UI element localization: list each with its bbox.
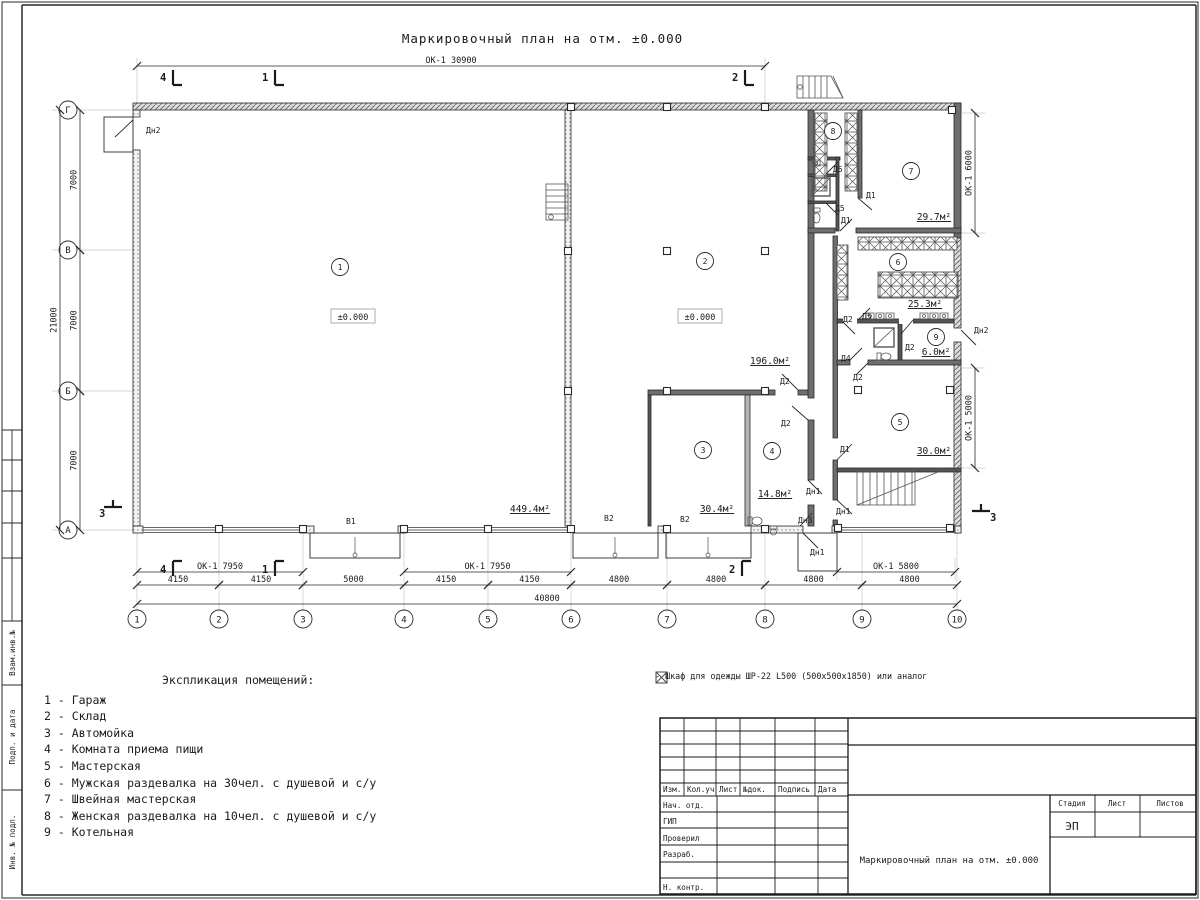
svg-text:Дн2: Дн2	[974, 326, 989, 335]
svg-text:2: 2	[216, 615, 221, 625]
svg-text:Д2: Д2	[843, 315, 853, 324]
svg-text:4150: 4150	[168, 575, 188, 585]
svg-text:Дн3: Дн3	[798, 516, 813, 525]
legend-item: 8 - Женская раздевалка на 10чел. с душев…	[44, 808, 584, 825]
svg-text:5: 5	[898, 418, 903, 427]
svg-text:Д1: Д1	[840, 445, 850, 454]
svg-text:449.4м²: 449.4м²	[510, 504, 550, 515]
svg-text:25.3м²: 25.3м²	[908, 299, 942, 310]
svg-text:1: 1	[338, 263, 343, 272]
svg-text:Лист: Лист	[719, 785, 737, 794]
svg-text:7000: 7000	[70, 170, 80, 190]
legend-item: 9 - Котельная	[44, 824, 584, 841]
svg-text:Проверил: Проверил	[663, 834, 700, 843]
svg-text:3: 3	[99, 508, 105, 520]
porches-and-gates	[104, 117, 837, 571]
svg-text:1: 1	[262, 564, 268, 576]
svg-text:1: 1	[262, 72, 268, 84]
svg-text:4800: 4800	[706, 575, 726, 585]
svg-text:1: 1	[134, 615, 139, 625]
svg-text:10: 10	[952, 615, 963, 625]
svg-text:Д2: Д2	[781, 419, 791, 428]
wall-stairhall-top	[837, 468, 961, 472]
svg-text:8: 8	[831, 127, 836, 136]
svg-text:Г: Г	[65, 106, 70, 116]
svg-text:29.7м²: 29.7м²	[917, 212, 951, 223]
stage-value: ЭП	[1065, 820, 1078, 833]
left-wall	[133, 150, 140, 526]
doc-title: Маркировочный план на отм. ±0.000	[860, 856, 1039, 866]
svg-text:4: 4	[160, 72, 166, 84]
svg-text:Д2: Д2	[780, 377, 790, 386]
svg-text:ОК-1 7950: ОК-1 7950	[197, 562, 243, 572]
wall-room8-room7	[858, 110, 862, 198]
svg-text:8: 8	[762, 615, 767, 625]
svg-text:40800: 40800	[534, 594, 560, 604]
svg-text:3: 3	[701, 446, 706, 455]
legend-item: 3 - Автомойка	[44, 725, 584, 742]
svg-text:ОК-1 5000: ОК-1 5000	[965, 395, 975, 441]
svg-text:4800: 4800	[803, 575, 823, 585]
sheet-header: Лист	[1108, 799, 1126, 808]
svg-text:Д5: Д5	[833, 165, 843, 174]
legend-item: 2 - Склад	[44, 708, 584, 725]
svg-text:Дн2: Дн2	[146, 126, 161, 135]
wall-right-block	[808, 110, 814, 398]
stairs-room5	[857, 472, 938, 505]
svg-text:7: 7	[664, 615, 669, 625]
svg-text:3: 3	[990, 512, 996, 524]
svg-text:№док.: №док.	[742, 785, 766, 794]
svg-text:4800: 4800	[899, 575, 919, 585]
svg-text:3: 3	[300, 615, 305, 625]
svg-text:Разраб.: Разраб.	[663, 850, 695, 859]
svg-text:14.8м²: 14.8м²	[758, 489, 792, 500]
svg-text:Кол.уч: Кол.уч	[687, 785, 714, 794]
svg-text:ОК-1 5800: ОК-1 5800	[873, 562, 919, 572]
svg-text:21000: 21000	[50, 307, 60, 333]
svg-text:ОК-1 7950: ОК-1 7950	[464, 562, 510, 572]
svg-text:4150: 4150	[251, 575, 271, 585]
stamp-vzam: Взам.инв.№	[8, 630, 17, 676]
wardrobe-note: - Шкаф для одежды ШР-22 L500 (500x500x18…	[655, 671, 927, 681]
svg-text:В2: В2	[680, 515, 690, 524]
room-legend: Экспликация помещений: 1 - Гараж 2 - Скл…	[44, 672, 584, 841]
svg-text:Д2: Д2	[853, 373, 863, 382]
svg-text:5: 5	[485, 615, 490, 625]
svg-text:В1: В1	[346, 517, 356, 526]
svg-text:±0.000: ±0.000	[338, 313, 369, 323]
svg-text:Д1: Д1	[841, 216, 851, 225]
stage-header: Стадия	[1058, 799, 1085, 808]
svg-text:4150: 4150	[436, 575, 456, 585]
svg-text:7000: 7000	[70, 310, 80, 330]
svg-text:Д4: Д4	[841, 354, 851, 363]
svg-text:Подпись: Подпись	[778, 785, 810, 794]
plan-title: Маркировочный план на отм. ±0.000	[0, 31, 1085, 46]
sheets-header: Листов	[1156, 799, 1183, 808]
gate-v2a-porch	[573, 533, 658, 558]
svg-text:196.0м²: 196.0м²	[750, 356, 790, 367]
svg-text:Д2: Д2	[905, 343, 915, 352]
shower-cabin	[874, 328, 894, 347]
drawing-sheet: 12345678910ГВБА	[0, 0, 1200, 900]
svg-text:6.0м²: 6.0м²	[922, 347, 951, 358]
svg-text:ГИП: ГИП	[663, 817, 677, 826]
legend-item: 4 - Комната приема пищи	[44, 741, 584, 758]
side-stamp: Взам.инв.№ Подп. и дата Инв. № подл.	[8, 630, 17, 870]
svg-text:5000: 5000	[343, 575, 363, 585]
svg-text:2: 2	[732, 72, 738, 84]
svg-text:А: А	[65, 526, 71, 536]
wall-room5-top	[868, 360, 961, 365]
svg-text:7000: 7000	[70, 450, 80, 470]
svg-text:ОК-1 30900: ОК-1 30900	[425, 56, 476, 66]
svg-text:7: 7	[909, 167, 914, 176]
svg-text:4150: 4150	[519, 575, 539, 585]
svg-text:9: 9	[934, 333, 939, 342]
svg-text:4: 4	[770, 447, 775, 456]
svg-text:9: 9	[859, 615, 864, 625]
svg-text:Дн1: Дн1	[806, 487, 821, 496]
svg-text:30.4м²: 30.4м²	[700, 504, 734, 515]
svg-text:Дата: Дата	[818, 785, 836, 794]
svg-text:±0.000: ±0.000	[685, 313, 716, 323]
svg-text:Изм.: Изм.	[663, 785, 681, 794]
wall-room1-room2	[565, 110, 571, 526]
legend-item: 7 - Швейная мастерская	[44, 791, 584, 808]
gate-v2b-porch	[666, 533, 751, 558]
stairs-exterior-top	[797, 76, 843, 98]
svg-text:2: 2	[703, 257, 708, 266]
svg-text:Н. контр.: Н. контр.	[663, 883, 704, 892]
axis-grid: 12345678910ГВБА	[52, 101, 966, 628]
svg-text:В2: В2	[604, 514, 614, 523]
legend-item: 6 - Мужская раздевалка на 30чел. с душев…	[44, 775, 584, 792]
svg-text:Д5: Д5	[862, 312, 872, 321]
wall-room6-top	[856, 228, 961, 233]
right-wall-top	[954, 103, 961, 238]
titleblock: Изм.Кол.учЛист№док.ПодписьДатаНач. отд.Г…	[660, 718, 1196, 894]
svg-text:4: 4	[401, 615, 406, 625]
svg-text:Д1: Д1	[866, 191, 876, 200]
svg-text:Дн1: Дн1	[810, 548, 825, 557]
stamp-inv: Инв. № подл.	[8, 815, 17, 870]
svg-text:4: 4	[160, 564, 166, 576]
svg-text:6: 6	[568, 615, 573, 625]
svg-text:2: 2	[729, 564, 735, 576]
svg-text:Д5: Д5	[835, 204, 845, 213]
svg-text:Дн1: Дн1	[836, 507, 851, 516]
wardrobe-symbol-icon	[655, 671, 668, 684]
wall-room3-room4	[745, 395, 750, 526]
svg-text:В: В	[65, 246, 70, 256]
wardrobe-note-text: - Шкаф для одежды ШР-22 L500 (500x500x18…	[655, 671, 927, 681]
legend-title: Экспликация помещений:	[162, 672, 584, 689]
svg-text:4800: 4800	[609, 575, 629, 585]
stamp-podp: Подп. и дата	[8, 710, 17, 765]
svg-text:ОК-1 6000: ОК-1 6000	[965, 150, 975, 196]
bottom-wall	[133, 526, 143, 533]
toilet	[877, 353, 891, 360]
svg-text:Нач. отд.: Нач. отд.	[663, 801, 704, 810]
legend-item: 5 - Мастерская	[44, 758, 584, 775]
svg-text:Б: Б	[65, 387, 70, 397]
legend-item: 1 - Гараж	[44, 692, 584, 709]
svg-text:30.0м²: 30.0м²	[917, 446, 951, 457]
svg-text:6: 6	[896, 258, 901, 267]
top-wall	[133, 103, 961, 110]
porch-top-left	[104, 117, 133, 152]
